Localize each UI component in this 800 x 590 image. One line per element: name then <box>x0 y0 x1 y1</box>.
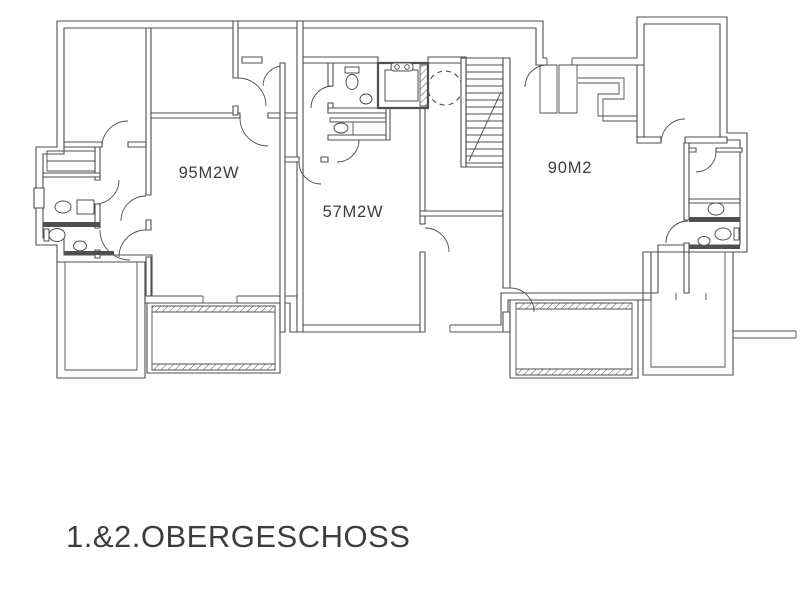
wall <box>146 220 151 230</box>
wall <box>503 312 510 332</box>
wall <box>420 108 425 216</box>
unit-right-area-label: 90M2 <box>548 159 592 177</box>
wall <box>303 57 378 63</box>
door-swing-arc <box>696 152 716 172</box>
wall-solid <box>689 245 740 249</box>
door-swing-arc <box>661 119 685 143</box>
stair-landing-entrance-opening <box>525 57 572 87</box>
door-swing-arc <box>121 196 146 221</box>
unit-left-area-label: 95M2W <box>179 164 240 182</box>
building-core <box>378 58 503 167</box>
wall <box>146 28 151 195</box>
dashed-column-circle <box>428 71 462 105</box>
wall-solid <box>689 217 740 222</box>
wall <box>233 106 238 115</box>
wall <box>689 199 740 203</box>
wall <box>242 57 262 63</box>
corridor-walls <box>578 78 637 121</box>
closet <box>540 65 577 113</box>
sink-fixture <box>708 203 724 215</box>
wall <box>503 58 510 288</box>
sink-fixture <box>74 241 87 251</box>
wall <box>637 65 644 137</box>
wall <box>328 63 333 86</box>
elevator-wall-hatch <box>420 65 428 106</box>
site-boundary-line <box>733 331 796 338</box>
center-balcony <box>510 300 638 378</box>
wall <box>386 108 390 140</box>
railing-hatch <box>152 306 275 312</box>
sink-fixture <box>360 94 372 104</box>
door-swing-arc <box>337 140 359 162</box>
door-swing-arc <box>425 228 449 252</box>
toilet-fixture <box>715 228 739 240</box>
railing-hatch <box>516 369 632 375</box>
toilet-fixture <box>345 67 359 90</box>
unit-right-90m2: 90M2 <box>540 65 742 293</box>
wall <box>420 252 425 332</box>
wall <box>285 157 299 162</box>
envelope-openings <box>203 57 706 332</box>
wall <box>321 157 328 162</box>
stair-side-wall <box>461 58 466 167</box>
wall <box>297 21 303 332</box>
balcony-railing <box>65 262 137 370</box>
wall <box>146 257 151 296</box>
sink-fixture <box>55 201 71 213</box>
railing-hatch <box>152 364 275 370</box>
wall-solid <box>43 222 100 227</box>
wall <box>64 142 102 147</box>
door-swing-arc <box>102 121 128 147</box>
mid-left-balcony <box>147 303 280 373</box>
wall <box>280 63 285 332</box>
stair-direction-line <box>469 92 501 161</box>
floor-title: 1.&2.OBERGESCHOSS <box>66 519 410 554</box>
party-wall-left-middle <box>280 21 303 332</box>
elevator-car <box>385 70 418 101</box>
left-wing-bathrooms <box>43 147 130 260</box>
wall <box>128 142 146 147</box>
wall <box>151 113 240 118</box>
unit-left-95m2w: 95M2W <box>43 21 300 296</box>
left-balcony <box>57 262 145 378</box>
vent-fixture <box>391 63 413 71</box>
wall <box>684 143 689 220</box>
door-swing-arc <box>666 221 688 243</box>
floor-plan-canvas: 95M2W <box>0 0 800 590</box>
wall <box>716 148 742 152</box>
entrance-door-swing-arc <box>525 65 547 87</box>
wall <box>420 211 503 216</box>
wall <box>689 148 696 152</box>
wall <box>43 173 100 177</box>
stair-treads <box>466 65 503 163</box>
wall <box>328 135 390 140</box>
staircase <box>461 58 503 167</box>
balconies <box>57 252 733 378</box>
wall <box>233 21 238 78</box>
wall <box>684 243 689 293</box>
sink-fixture <box>334 123 348 133</box>
toilet-fixture <box>44 229 65 242</box>
party-wall-middle-right <box>503 58 534 332</box>
unit-middle-area-label: 57M2W <box>323 203 384 221</box>
door-swing-arc <box>238 78 266 106</box>
wall <box>685 137 727 143</box>
wall <box>420 216 425 224</box>
scanned-floor-plan-page: 95M2W <box>0 0 800 590</box>
middle-bath-room <box>328 108 390 162</box>
wall <box>428 57 466 63</box>
wall <box>637 137 661 143</box>
stair-outline <box>466 58 503 167</box>
door-swing-arc <box>95 180 119 204</box>
washing-machine <box>77 200 94 214</box>
right-bathrooms <box>666 143 742 293</box>
left-wing-window <box>34 188 44 208</box>
right-balcony-door-opening <box>676 292 706 300</box>
sink-fixture <box>698 237 710 246</box>
elevator-shaft <box>378 63 428 108</box>
door-swing-arc <box>240 118 268 146</box>
wall-solid <box>64 251 114 255</box>
railing-hatch <box>516 303 632 309</box>
door-swing-arc <box>119 230 146 257</box>
